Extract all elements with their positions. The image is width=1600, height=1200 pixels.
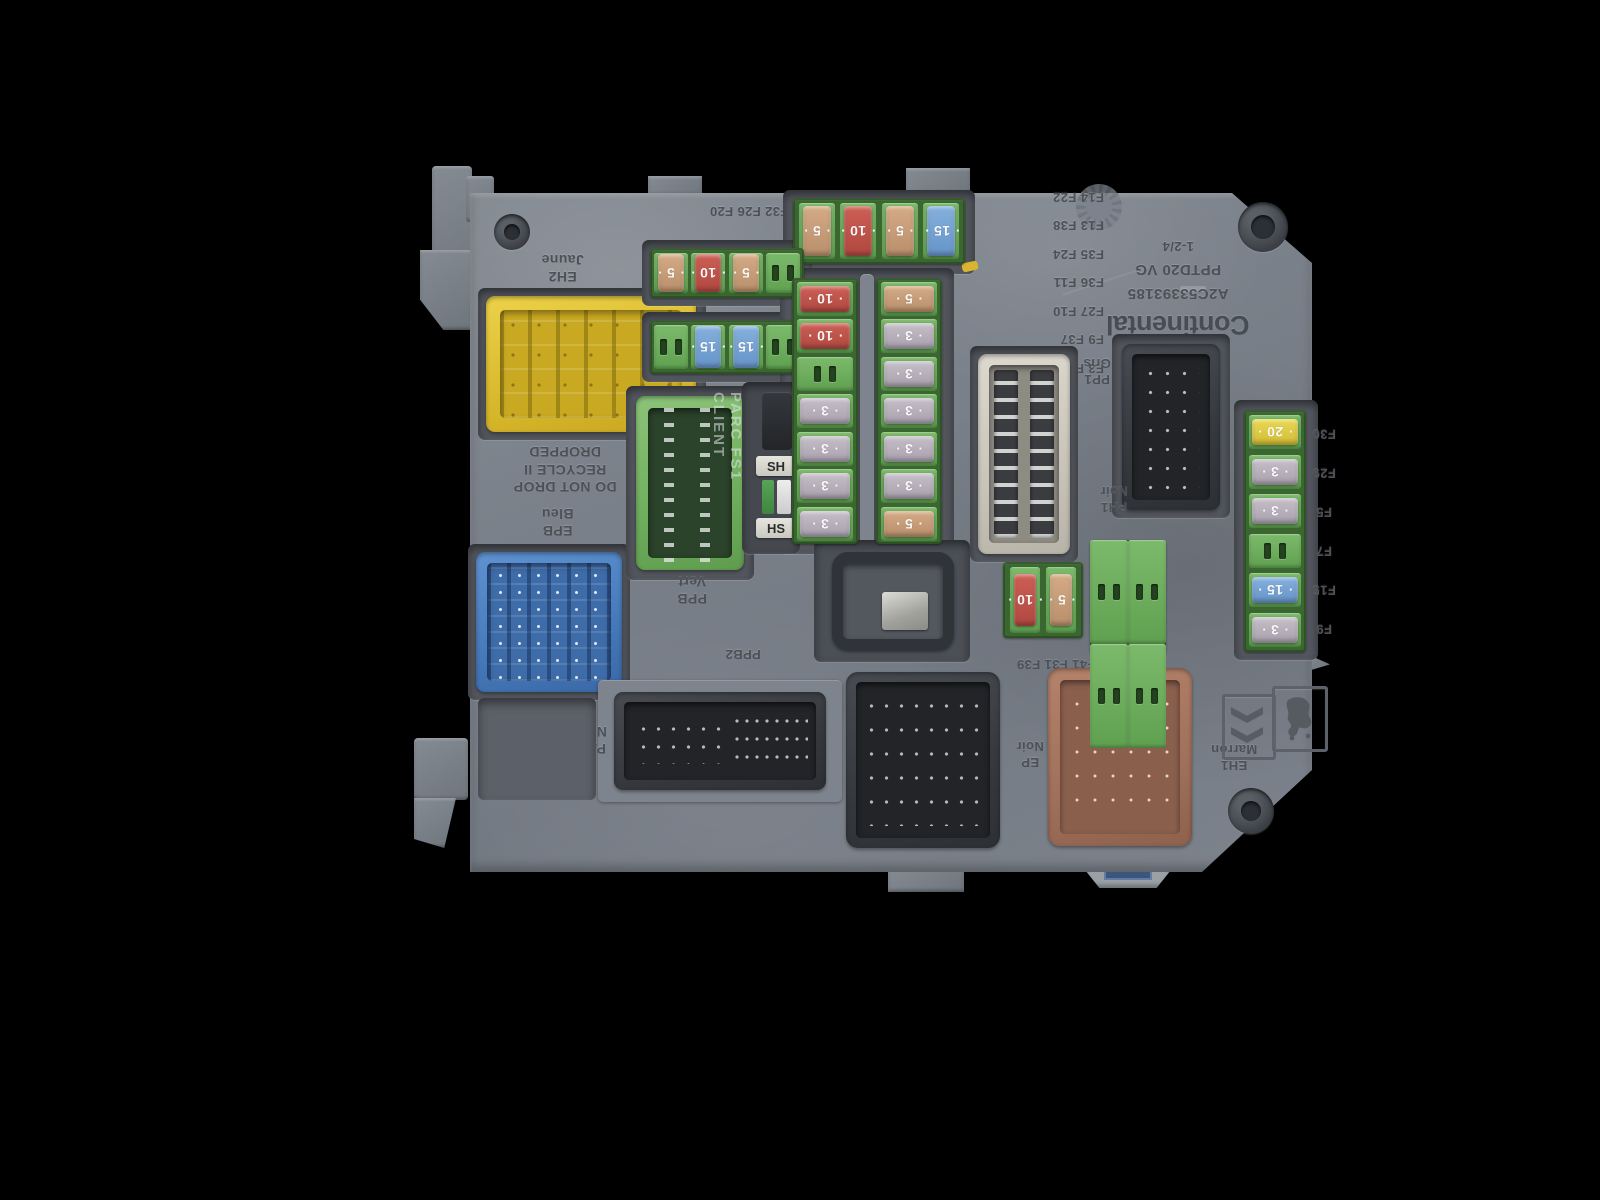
fuse-rating: · 3 · xyxy=(895,478,922,494)
fuse-slot: · 3 · xyxy=(1249,613,1301,647)
fuse-3a: · 3 · xyxy=(1252,617,1298,643)
fuse-20a: · 20 · xyxy=(1252,419,1298,445)
fuse-slot: · 15 · xyxy=(1249,573,1301,607)
fuse-rating: · 3 · xyxy=(811,441,838,457)
fuse-3a: · 3 · xyxy=(1252,498,1298,524)
fuse-slot: · 10 · xyxy=(797,319,853,353)
fuse-slot: · 5 · xyxy=(654,253,688,293)
fuse-15a: · 15 · xyxy=(927,206,955,256)
fuse-10a: · 10 · xyxy=(1014,574,1036,626)
fuse-slot: · 15 · xyxy=(691,325,725,369)
fuse-slot: · 10 · xyxy=(1010,567,1040,633)
fuse-slot: · 10 · xyxy=(797,282,853,316)
fuse-10a: · 10 · xyxy=(695,254,721,292)
fuse-rating: · 3 · xyxy=(895,441,922,457)
fuse-3a: · 3 · xyxy=(884,398,934,424)
fuse-label: F9 xyxy=(1302,615,1346,637)
index-code: 1-2/4 xyxy=(1162,239,1194,254)
connector-pp1-white xyxy=(978,354,1070,554)
connector-code: PH1 xyxy=(1101,499,1128,515)
fuse-rating: · 20 · xyxy=(1257,424,1293,440)
fuse-slot: · 5 · xyxy=(881,282,937,316)
fuse-rating: · 3 · xyxy=(1261,464,1288,480)
fuse-rating: · 5 · xyxy=(657,265,684,281)
parc-switch-connector xyxy=(762,392,792,450)
fuse-map-row: F36 F11 xyxy=(982,276,1104,291)
connector-code: EPB xyxy=(543,522,573,540)
fuse-rating: · 15 · xyxy=(924,223,960,239)
fuse-map-row: F35 F24 xyxy=(982,247,1104,262)
fuse-slot: · 3 · xyxy=(881,319,937,353)
fuse-label: F7 xyxy=(1302,537,1346,559)
fuse-rating: · 5 · xyxy=(1048,592,1075,608)
fuse-slot: · 15 · xyxy=(923,203,959,259)
fuse-slot: · 10 · xyxy=(840,203,876,259)
parc-slider-white xyxy=(777,480,791,514)
fuse-rating: · 3 · xyxy=(895,328,922,344)
fuse-rating: · 5 · xyxy=(732,265,759,281)
warning-text: DO NOT DROP RECYCLE II DROPPED xyxy=(500,430,630,508)
fuse-slot: · 5 · xyxy=(882,203,918,259)
fuse-rating: · 10 · xyxy=(1007,592,1043,608)
fuse-5a: · 5 · xyxy=(884,511,934,537)
fuse-rating: · 5 · xyxy=(803,223,830,239)
connector-color: Gris xyxy=(1083,355,1111,371)
mounting-bracket-foot xyxy=(420,250,472,330)
label-epb: EPB Bleu xyxy=(515,500,600,544)
warning-line: DROPPED xyxy=(529,443,601,461)
fuse-strip-empty-quad xyxy=(1090,540,1166,654)
connector-ep-black xyxy=(846,672,1000,848)
fuse-strip-left-row-2: · 15 ·· 15 · xyxy=(650,320,804,374)
fuse-label: F5 xyxy=(1302,498,1346,520)
fuse-box-photo: Continental A2C53393185 PPTD20 VG 1-2/4 … xyxy=(0,0,1600,1200)
sh-tab: SH xyxy=(756,456,796,476)
fuse-map-row: F13 F38 xyxy=(982,219,1104,234)
fuse-slot: · 5 · xyxy=(799,203,835,259)
connector-color: Vert xyxy=(678,573,706,591)
fuse-rating: · 3 · xyxy=(811,403,838,419)
fuse-slot: · 3 · xyxy=(881,394,937,428)
empty-bay xyxy=(478,698,596,800)
connector-color: Bleu xyxy=(542,505,574,523)
hs-tab: HS xyxy=(756,518,796,538)
fuse-bay-divider xyxy=(860,274,874,548)
fuse-15a: · 15 · xyxy=(733,326,759,368)
fuse-slot: · 20 · xyxy=(1249,415,1301,449)
fuse-label: F29 xyxy=(1302,459,1346,481)
fuse-5a: · 5 · xyxy=(803,206,831,256)
fuse-map-row: F27 F10 xyxy=(982,304,1104,319)
clamp-metal-contact xyxy=(882,592,928,630)
peugeot-lion-logo xyxy=(1272,686,1328,752)
fuse-rating: · 15 · xyxy=(690,339,726,355)
fuse-rating: · 3 · xyxy=(1261,622,1288,638)
empty-fuse-slot xyxy=(1249,534,1301,568)
fuse-3a: · 3 · xyxy=(884,323,934,349)
fuse-10a: · 10 · xyxy=(844,206,872,256)
fuse-strip-top-row: · 5 ·· 10 ·· 5 ·· 15 · xyxy=(793,198,965,264)
connector-code: PPB xyxy=(677,590,707,608)
connector-color: Noir xyxy=(1016,738,1044,754)
fuse-strip-col-a: · 10 ·· 10 ·· 3 ·· 3 ·· 3 ·· 3 · xyxy=(792,278,858,544)
fuse-slot: · 3 · xyxy=(881,357,937,391)
fuse-rating: · 5 · xyxy=(895,291,922,307)
fuse-slot: · 3 · xyxy=(797,507,853,541)
warning-line: DO NOT DROP xyxy=(513,478,616,496)
fuse-3a: · 3 · xyxy=(800,511,850,537)
fuse-slot: · 5 · xyxy=(1046,567,1076,633)
connector-color: Noir xyxy=(1100,483,1128,499)
fuse-rating: · 3 · xyxy=(811,478,838,494)
label-ppb: PPB Vert xyxy=(652,568,732,612)
part-info-block: Continental A2C53393185 PPTD20 VG 1-2/4 xyxy=(1078,192,1278,340)
fuse-3a: · 3 · xyxy=(800,398,850,424)
fuse-5a: · 5 · xyxy=(1050,574,1072,626)
fuse-5a: · 5 · xyxy=(658,254,684,292)
mounting-bracket-bottom-left xyxy=(414,738,468,800)
fuse-3a: · 3 · xyxy=(1252,459,1298,485)
label-ph1: PH1 Noir xyxy=(1082,478,1146,520)
fuse-slot: · 3 · xyxy=(1249,455,1301,489)
empty-fuse-slot xyxy=(654,325,688,369)
label-eh2: EH2 Jaune xyxy=(515,246,610,290)
fuse-slot: · 3 · xyxy=(797,432,853,466)
connector-epb-blue xyxy=(476,552,622,692)
empty-fuse-slot xyxy=(1090,644,1128,748)
parc-switch-title: PARC FS1 CLIENT xyxy=(722,392,744,552)
citroen-chevrons-logo xyxy=(1222,694,1276,760)
connector-code: EP xyxy=(1021,754,1039,770)
fuse-rating: · 10 · xyxy=(807,291,843,307)
fuse-15a: · 15 · xyxy=(1252,577,1298,603)
fuse-rating: · 5 · xyxy=(886,223,913,239)
fuse-slot: · 5 · xyxy=(729,253,763,293)
model-code: PPTD20 VG xyxy=(1135,261,1221,278)
screw-hole xyxy=(494,214,530,250)
fuse-slot: · 3 · xyxy=(881,432,937,466)
parc-slider-green xyxy=(762,480,774,514)
fuse-label: F15 xyxy=(1302,576,1346,598)
fuse-rating: · 15 · xyxy=(1257,582,1293,598)
connector-code: PP1 xyxy=(1084,371,1110,387)
empty-fuse-slot xyxy=(1090,540,1128,644)
fuse-map-row: F14 F22 xyxy=(982,190,1104,205)
fuse-3a: · 3 · xyxy=(884,361,934,387)
fuse-10a: · 10 · xyxy=(800,286,850,312)
fuse-rating: · 10 · xyxy=(840,223,876,239)
fuse-strip-right-col: · 20 ·· 3 ·· 3 ·· 15 ·· 3 · xyxy=(1244,410,1306,652)
connector-pav-black xyxy=(614,692,826,790)
fuse-10a: · 10 · xyxy=(800,323,850,349)
fuse-rating: · 10 · xyxy=(690,265,726,281)
fuse-slot: · 3 · xyxy=(797,394,853,428)
fuse-slot: · 10 · xyxy=(691,253,725,293)
part-number: A2C53393185 xyxy=(1127,285,1228,302)
fuse-5a: · 5 · xyxy=(733,254,759,292)
fuse-rating: · 3 · xyxy=(811,516,838,532)
fuse-15a: · 15 · xyxy=(695,326,721,368)
fuse-rating: · 3 · xyxy=(895,403,922,419)
fuse-slot: · 3 · xyxy=(1249,494,1301,528)
fuse-3a: · 3 · xyxy=(884,436,934,462)
fuse-slot: · 3 · xyxy=(797,469,853,503)
fuse-label: F30 xyxy=(1302,420,1346,442)
label-ppb2: PPB2 xyxy=(714,642,772,662)
fuse-slot: · 5 · xyxy=(881,507,937,541)
fuse-3a: · 3 · xyxy=(800,473,850,499)
fuse-3a: · 3 · xyxy=(800,436,850,462)
fuse-rating: · 3 · xyxy=(895,366,922,382)
fuse-strip-col-b: · 5 ·· 3 ·· 3 ·· 3 ·· 3 ·· 3 ·· 5 · xyxy=(876,278,942,544)
empty-fuse-slot xyxy=(1128,540,1166,644)
fuse-rating: · 10 · xyxy=(807,328,843,344)
fuse-strip-left-row-1: · 5 ·· 10 ·· 5 · xyxy=(650,248,804,298)
empty-fuse-slot xyxy=(1128,644,1166,748)
fuse-rating: · 3 · xyxy=(1261,503,1288,519)
connector-color: Jaune xyxy=(541,251,583,269)
fuse-slot: · 15 · xyxy=(729,325,763,369)
warning-line: RECYCLE II xyxy=(524,460,607,478)
fuse-rating: · 15 · xyxy=(728,339,764,355)
fuse-5a: · 5 · xyxy=(886,206,914,256)
fuse-3a: · 3 · xyxy=(884,473,934,499)
mounting-bracket-bottom-left-foot xyxy=(414,798,456,848)
connector-code: EH2 xyxy=(548,268,576,286)
fuse-rating: · 5 · xyxy=(895,516,922,532)
screw-hole xyxy=(1228,788,1274,834)
empty-fuse-slot xyxy=(797,357,853,391)
fuse-strip-small-pair: · 10 ·· 5 · xyxy=(1003,562,1083,638)
fuse-5a: · 5 · xyxy=(884,286,934,312)
fuse-slot: · 3 · xyxy=(881,469,937,503)
